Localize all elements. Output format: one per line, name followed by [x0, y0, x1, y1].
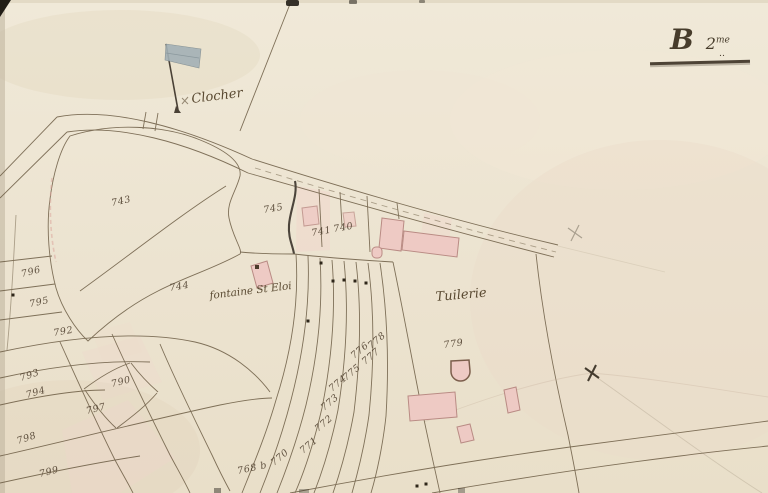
- scan-mark: [349, 0, 357, 4]
- scan-edge-top: [0, 0, 768, 3]
- tuilerie-main-building: [379, 218, 404, 251]
- survey-dot: [12, 294, 15, 297]
- survey-dot: [332, 280, 335, 283]
- survey-dot: [416, 485, 419, 488]
- survey-dot: [425, 483, 428, 486]
- survey-dot: [320, 262, 323, 265]
- scan-mark: [286, 0, 299, 6]
- scan-mark: [299, 489, 309, 493]
- small-building: [302, 206, 319, 226]
- paper-stain: [300, 70, 540, 170]
- survey-dot: [307, 320, 310, 323]
- abbreviation-dots: ‥: [692, 50, 754, 59]
- cadastral-map: Clocher fontaine St Eloi Tuilerie 743745…: [0, 0, 768, 493]
- survey-dot: [343, 279, 346, 282]
- tuilerie-kiln: [451, 360, 470, 381]
- scan-edge-left: [0, 0, 5, 493]
- scan-mark: [419, 0, 425, 3]
- scan-mark: [214, 488, 221, 493]
- outbuilding: [408, 392, 457, 421]
- fountain-mark: [255, 265, 259, 269]
- section-number-value: 2: [706, 34, 716, 53]
- survey-dot: [354, 280, 357, 283]
- section-number-suffix: me: [716, 36, 730, 46]
- map-page: Clocher fontaine St Eloi Tuilerie 743745…: [0, 0, 768, 493]
- survey-dot: [365, 282, 368, 285]
- scan-mark: [458, 488, 465, 493]
- tuilerie-annex: [372, 247, 382, 258]
- section-letter: B: [670, 23, 696, 56]
- section-title: B2me ‥: [646, 26, 754, 64]
